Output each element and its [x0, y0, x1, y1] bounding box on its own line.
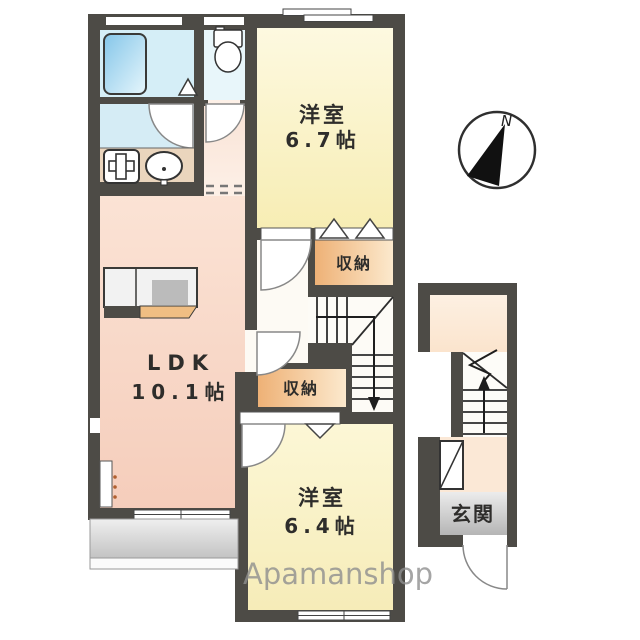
wall	[308, 285, 405, 297]
wall	[245, 14, 257, 330]
bathtub	[104, 34, 146, 94]
sink-faucet	[161, 180, 167, 185]
balcony-railing	[90, 558, 238, 569]
kitchen-base-wall	[104, 306, 140, 318]
washbasin-sink	[146, 152, 182, 180]
fixture-dot	[113, 475, 117, 479]
wall	[194, 14, 204, 196]
ldk-size: 10.1帖	[131, 380, 230, 404]
western-room-top-label: 洋室	[299, 103, 347, 127]
closet-bottom-door-track	[240, 412, 340, 424]
fixture-dot	[113, 495, 117, 499]
genkan-label: 玄関	[451, 502, 495, 526]
compass: N	[459, 112, 535, 188]
wall	[100, 182, 204, 196]
wall	[245, 228, 261, 240]
watermark: Apamanshop	[243, 557, 433, 591]
entrance-block-notch	[418, 352, 451, 437]
kitchen-base-trim	[140, 306, 197, 318]
bathroom-window	[106, 17, 182, 25]
western-top-window	[304, 15, 373, 22]
sink-drain	[162, 167, 166, 171]
floorplan-image: N 洋室 6.7帖 収納 収納 LDK 10.1帖 洋室 6.4帖 玄関 Apa…	[0, 0, 640, 640]
wall	[311, 228, 315, 240]
ldk-side-window	[90, 418, 100, 433]
western-room-bottom-size: 6.4帖	[284, 514, 359, 538]
ldk-wall-fixture	[100, 461, 112, 507]
doorway-western-top	[261, 228, 311, 240]
fixture-dot	[113, 485, 117, 489]
toilet-bowl	[215, 42, 241, 72]
toilet-window	[204, 17, 244, 25]
kitchen-stove	[152, 280, 188, 305]
wall	[100, 97, 194, 104]
entrance-upper-hall	[430, 295, 507, 352]
balcony	[90, 519, 238, 558]
washing-machine-pan-cross	[116, 154, 126, 179]
wall	[352, 412, 405, 424]
closet-top-label: 収納	[336, 254, 372, 273]
floorplan-svg: N 洋室 6.7帖 収納 収納 LDK 10.1帖 洋室 6.4帖 玄関 Apa…	[0, 0, 640, 640]
ldk-doorway	[245, 330, 257, 372]
compass-north-label: N	[501, 112, 512, 130]
entrance-doorway	[463, 535, 507, 547]
western-room-top-size: 6.7帖	[285, 128, 360, 152]
western-room-bottom-label: 洋室	[298, 486, 346, 510]
western-bottom-window	[298, 611, 390, 620]
wall	[235, 372, 252, 412]
ldk-label: LDK	[147, 351, 215, 375]
closet-bottom-label: 収納	[283, 379, 319, 398]
ldk-balcony-window	[134, 510, 230, 519]
wall	[340, 412, 352, 424]
